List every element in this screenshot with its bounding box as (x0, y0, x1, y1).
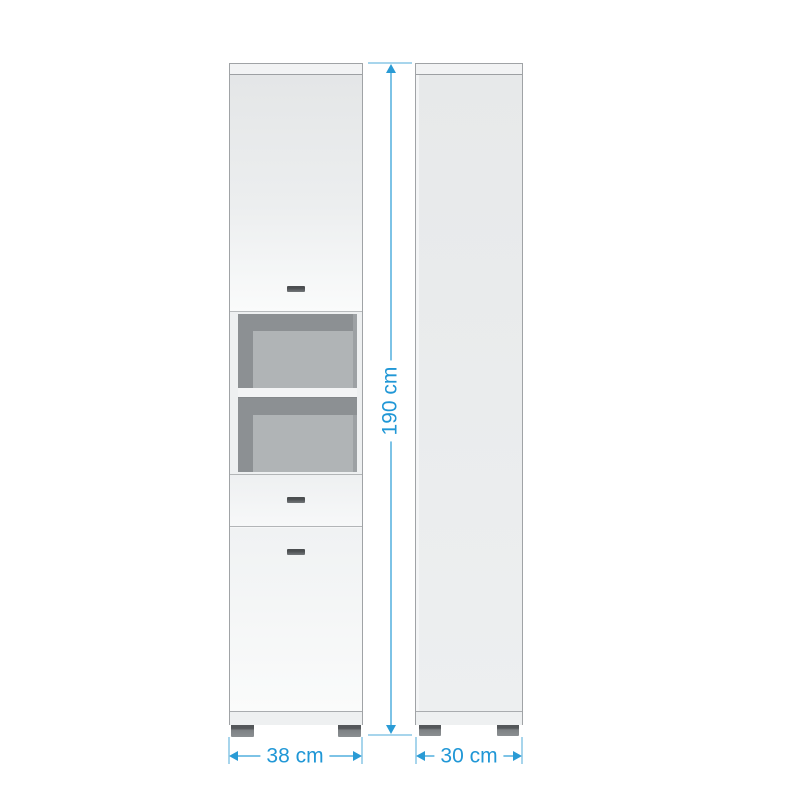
open-compartment (230, 312, 362, 474)
width-dim-arrow-left-icon (229, 751, 238, 761)
drawer-handle (287, 497, 305, 503)
side-panel (416, 75, 522, 711)
height-dimension-label: 190 cm (378, 361, 403, 442)
front-view (229, 63, 363, 725)
height-dim-arrow-up-icon (386, 64, 396, 73)
lower-door (230, 528, 362, 711)
height-dim-tick-bottom (368, 734, 412, 736)
depth-dim-arrow-right-icon (513, 751, 522, 761)
depth-dim-arrow-left-icon (416, 751, 425, 761)
width-dimension-label: 38 cm (260, 744, 329, 769)
side-top-panel (416, 64, 522, 75)
lower-door-handle (287, 549, 305, 555)
front-plinth (230, 711, 362, 725)
side-plinth (416, 711, 522, 725)
compartment-shelf (238, 388, 357, 398)
upper-door (230, 75, 362, 312)
under-shelf-shadow (238, 397, 357, 415)
front-top-panel (230, 64, 362, 75)
depth-dimension-label: 30 cm (434, 744, 503, 769)
side-foot-left (419, 725, 441, 736)
product-dimension-image: 190 cm 38 cm 30 cm (0, 0, 797, 796)
front-foot-right (338, 725, 361, 737)
width-dim-arrow-right-icon (353, 751, 362, 761)
compartment-interior (238, 314, 357, 472)
drawer (230, 474, 362, 527)
side-foot-right (497, 725, 519, 736)
compartment-top-shadow (238, 314, 357, 331)
front-foot-left (231, 725, 254, 737)
upper-door-handle (287, 286, 305, 292)
height-dim-arrow-down-icon (386, 725, 396, 734)
side-view (415, 63, 523, 725)
